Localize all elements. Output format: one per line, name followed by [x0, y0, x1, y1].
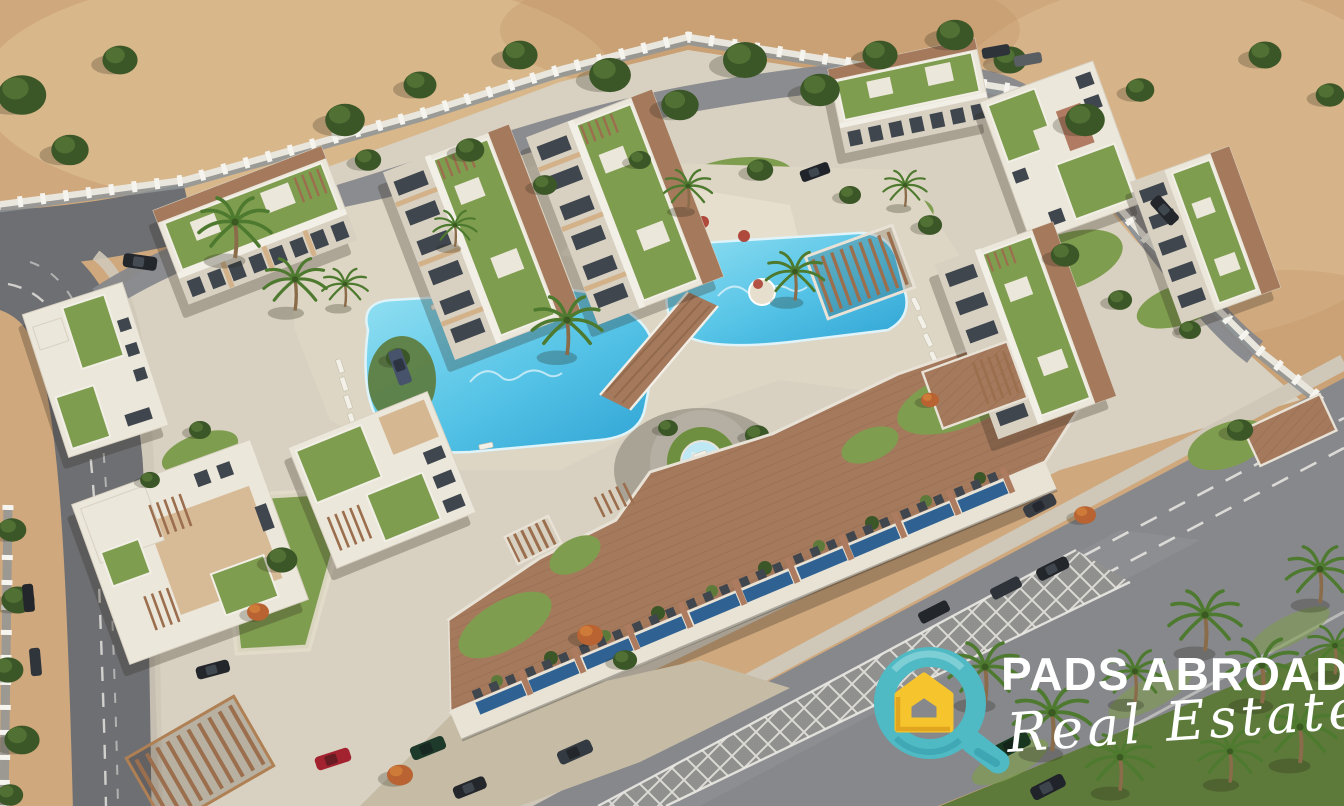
umbrella	[753, 279, 763, 289]
umbrella	[738, 230, 750, 242]
aerial-render: PADS ABROAD Real Estate	[0, 0, 1344, 806]
